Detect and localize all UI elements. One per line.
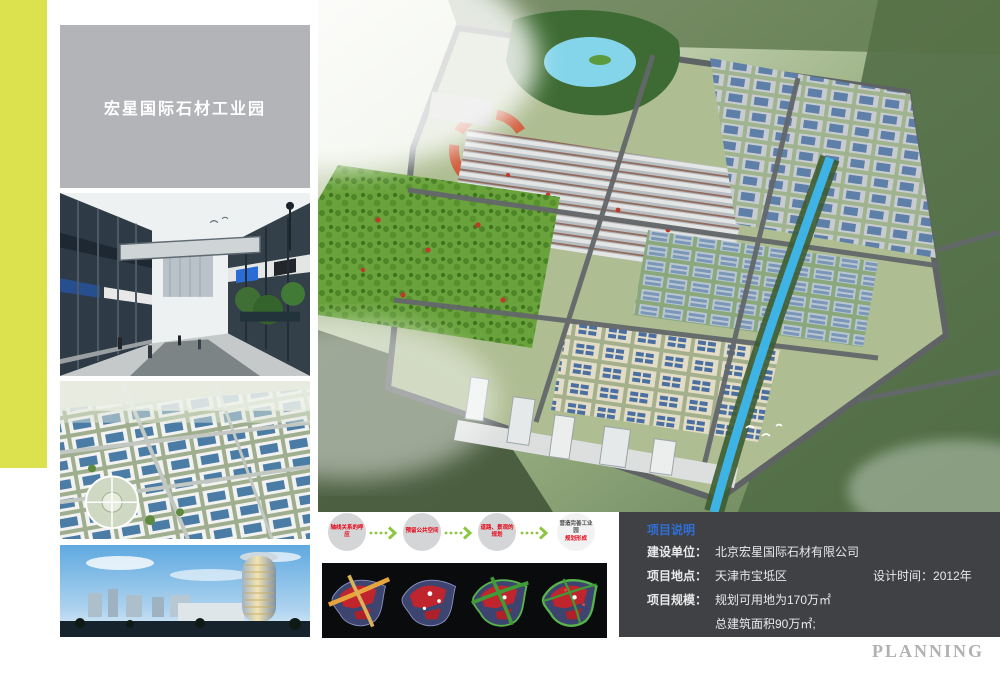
flow-arrow-icon bbox=[519, 526, 549, 540]
flow-step-2-label: 预留公共空间 bbox=[405, 528, 439, 535]
info-label: 项目地点： bbox=[647, 569, 715, 583]
flow-arrow-icon bbox=[443, 526, 473, 540]
aerial-park-image bbox=[60, 381, 310, 539]
flow-step-2: 预留公共空间 bbox=[403, 513, 441, 551]
node-points-diagram bbox=[397, 570, 461, 632]
process-flow: 轴线关系的呼应 预留公共空间 道路、景观的规划 营造完善工业园 规划形成 bbox=[326, 513, 614, 555]
master-plan-image bbox=[318, 0, 1000, 512]
project-title-panel: 宏星国际石材工业园 bbox=[60, 25, 310, 188]
info-row-scale: 项目规模：规划可用地为170万㎡ bbox=[647, 593, 1000, 607]
street-view-thumbnail bbox=[60, 193, 310, 376]
flow-step-4-sublabel: 规划形成 bbox=[565, 536, 587, 543]
accent-stripe bbox=[0, 0, 47, 468]
flow-step-1-label: 轴线关系的呼应 bbox=[330, 525, 364, 540]
info-label: 建设单位： bbox=[647, 545, 715, 559]
flow-step-3: 道路、景观的规划 bbox=[478, 513, 516, 551]
final-plan-diagram bbox=[538, 570, 602, 632]
info-row-builder: 建设单位：北京宏星国际石材有限公司 bbox=[647, 545, 1000, 559]
aerial-park-thumbnail bbox=[60, 381, 310, 539]
project-info-title: 项目说明 bbox=[647, 521, 1000, 538]
road-network-diagram bbox=[468, 570, 532, 632]
info-row-floor-area: 总建筑面积90万㎡; bbox=[647, 617, 1000, 631]
project-title: 宏星国际石材工业园 bbox=[104, 95, 266, 119]
flow-step-4-label: 营造完善工业园 bbox=[559, 521, 593, 536]
design-time: 设计时间：2012年 bbox=[873, 569, 972, 583]
lake-island bbox=[589, 55, 611, 65]
info-value: 北京宏星国际石材有限公司 bbox=[715, 545, 859, 559]
info-value: 天津市宝坻区 bbox=[715, 569, 787, 583]
flow-arrow-icon bbox=[368, 526, 398, 540]
flow-step-3-label: 道路、景观的规划 bbox=[480, 525, 514, 540]
tower-dusk-image bbox=[60, 545, 310, 637]
flow-step-1: 轴线关系的呼应 bbox=[328, 513, 366, 551]
planning-watermark: PLANNING bbox=[872, 641, 984, 662]
info-label: 项目规模： bbox=[647, 593, 715, 607]
flow-step-4: 营造完善工业园 规划形成 bbox=[557, 513, 595, 551]
street-scene-image bbox=[60, 193, 310, 376]
concept-diagram-panel bbox=[322, 563, 607, 638]
info-value: 总建筑面积90万㎡; bbox=[715, 617, 816, 631]
project-info-box: 项目说明 建设单位：北京宏星国际石材有限公司 项目地点：天津市宝坻区 设计时间：… bbox=[619, 512, 1000, 637]
master-plan-render bbox=[318, 0, 1000, 512]
tower-dusk-thumbnail bbox=[60, 545, 310, 637]
info-value: 规划可用地为170万㎡ bbox=[715, 593, 831, 607]
axis-overlay-diagram bbox=[327, 570, 391, 632]
info-row-location: 项目地点：天津市宝坻区 设计时间：2012年 bbox=[647, 569, 1000, 583]
